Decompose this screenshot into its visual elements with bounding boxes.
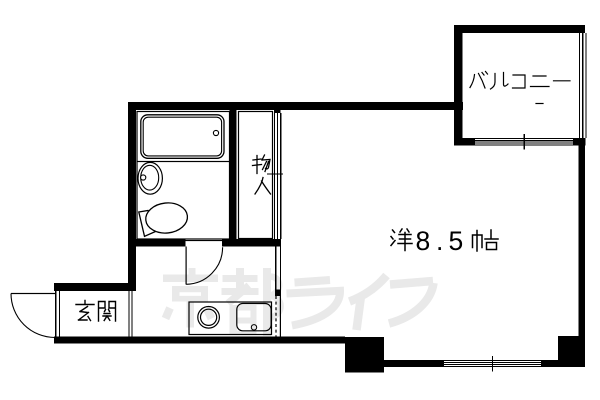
svg-text:8: 8	[416, 226, 431, 256]
svg-text:.: .	[436, 226, 443, 256]
svg-text:5: 5	[449, 226, 464, 256]
